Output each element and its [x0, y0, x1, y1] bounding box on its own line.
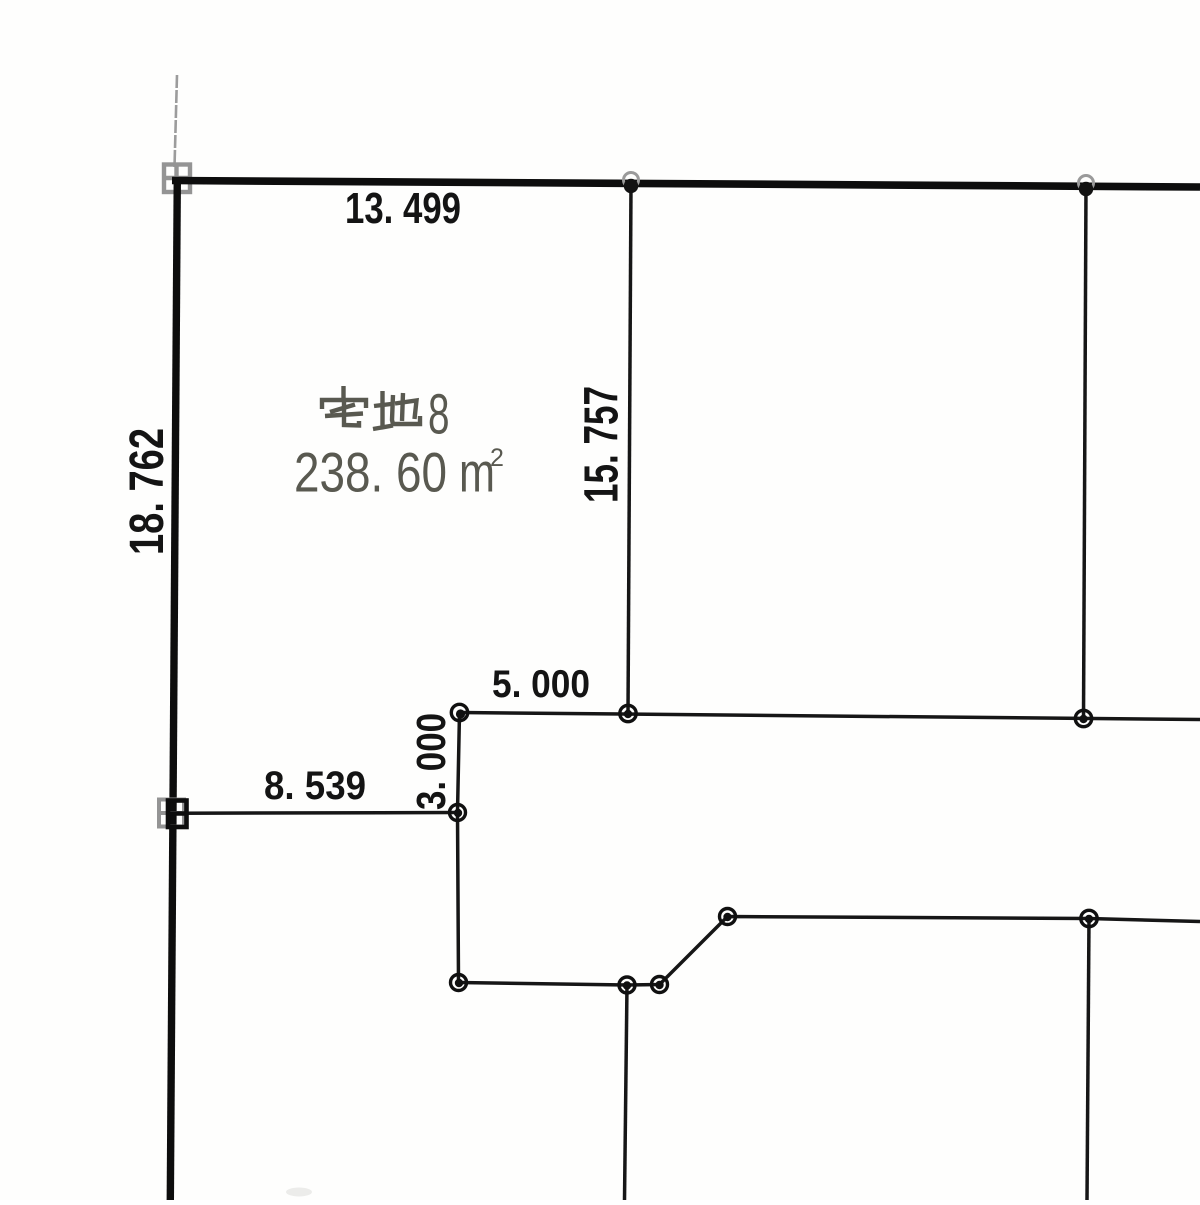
svg-text:8. 539: 8. 539 — [264, 764, 366, 808]
svg-text:238. 60: 238. 60 — [294, 441, 447, 504]
svg-text:3. 000: 3. 000 — [408, 713, 454, 810]
svg-text:8: 8 — [428, 383, 450, 447]
svg-text:2: 2 — [490, 444, 504, 472]
svg-text:5. 000: 5. 000 — [492, 663, 590, 706]
svg-text:13. 499: 13. 499 — [345, 184, 461, 233]
svg-text:18. 762: 18. 762 — [121, 428, 174, 555]
svg-text:15. 757: 15. 757 — [576, 386, 629, 503]
